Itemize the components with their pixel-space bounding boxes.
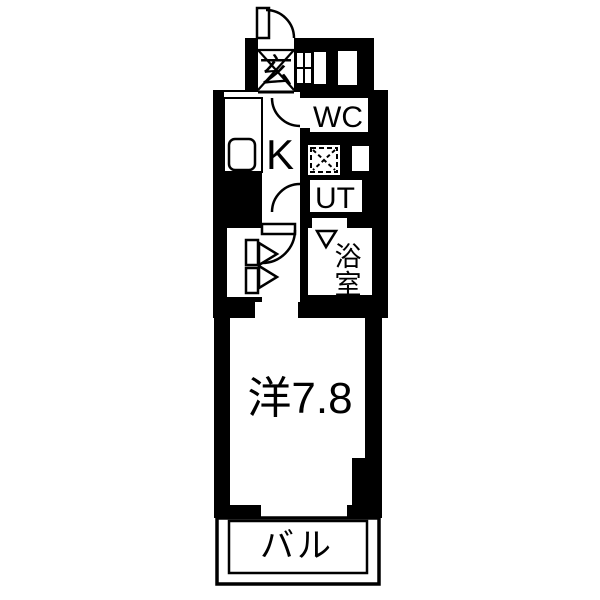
shoe-cabinet-cell [305,53,311,67]
entrance-label: 玄 [259,53,293,91]
meter-box-niche [314,52,326,84]
room-doorway-gap [255,302,298,318]
kitchen-label: K [266,131,294,178]
closet-door-panel [246,268,258,293]
floorplan-canvas: 玄 WC K UT 浴室 洋7.8 バル [0,0,600,600]
bath-door-leaf [312,218,347,228]
bathroom-label: 浴室 [335,242,362,300]
toilet-door-leaf [300,98,310,128]
closet-door-panel [246,240,258,265]
floorplan-svg: 玄 WC K UT 浴室 洋7.8 バル [0,0,600,600]
entrance-door [257,8,294,38]
utility-label: UT [315,182,355,215]
pillar [352,458,365,505]
shoe-cabinet-cell [297,53,303,67]
shoe-cabinet-cell [297,69,303,83]
toilet-label: WC [313,101,363,134]
room-door-leaf [262,224,295,234]
main-room-label: 洋7.8 [247,374,352,423]
side-niche [352,146,369,171]
entrance-door-leaf [257,8,269,38]
balcony-label: バル [260,527,334,565]
shoe-cabinet-cell [305,69,311,83]
pipe-shaft-niche [338,51,357,85]
window-opening [261,505,347,518]
